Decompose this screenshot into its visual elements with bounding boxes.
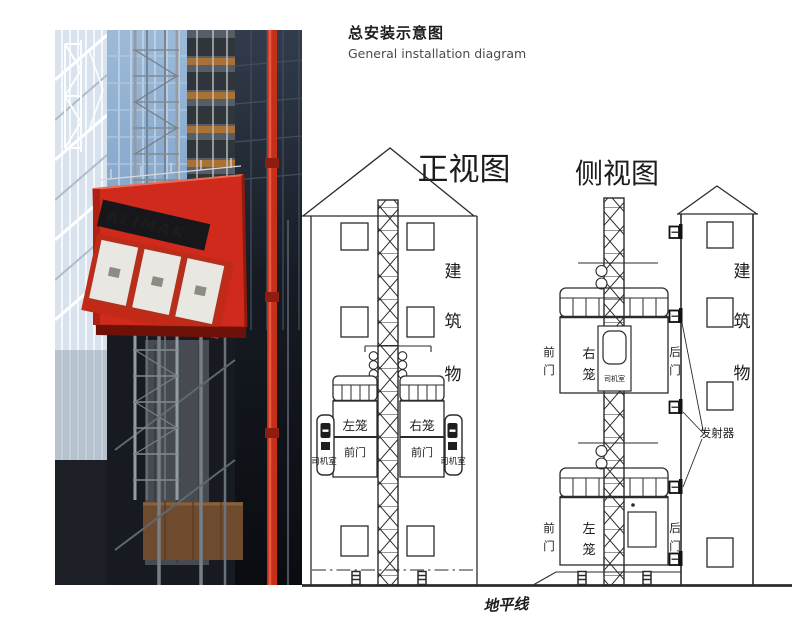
front-right-cab-label: 司机室 [440,456,466,467]
cage-window [628,512,656,547]
side-building [677,186,758,585]
front-building-label: 建 筑 物 [445,262,462,385]
svg-text:物: 物 [445,365,462,385]
front-right-door-label: 前门 [411,445,433,459]
svg-text:笼: 笼 [582,542,595,558]
side-building-label: 建 筑 物 [734,262,751,384]
transmitter-icon [670,551,683,566]
side-lower-rear-door: 后 [669,521,681,535]
front-left-cab: 司机室 [311,415,337,475]
transmitter-icon [670,479,683,494]
front-right-cage: 右笼 前门 [400,376,444,477]
side-cab-label: 司机室 [604,374,625,383]
front-mast [378,200,398,585]
side-view: 侧视图 司机室 右 笼 前 门 后 [534,157,758,585]
front-left-cab-label: 司机室 [311,456,337,467]
ground: 地平线 [302,586,792,616]
svg-text:建: 建 [445,262,462,282]
svg-text:门: 门 [669,363,681,377]
side-view-title: 侧视图 [575,157,659,190]
svg-text:门: 门 [543,539,555,553]
front-left-cage: 左笼 前门 [333,376,377,477]
svg-text:物: 物 [734,364,751,384]
front-left-door-label: 前门 [344,445,366,459]
svg-text:筑: 筑 [734,312,751,332]
side-lower-cage-label: 左 [582,522,595,537]
front-left-cage-label: 左笼 [342,418,367,433]
transmitter-label: 发射器 [700,426,735,440]
ground-label: 地平线 [483,595,531,615]
side-upper-front-door: 前 [543,345,555,359]
transmitter-icon [670,308,683,323]
side-upper-cage-label: 右 [582,347,595,362]
front-right-cage-label: 右笼 [409,418,434,433]
svg-text:建: 建 [734,262,751,282]
transmitter-leaders [682,323,703,487]
cab-window [603,331,626,364]
svg-text:笼: 笼 [582,367,595,383]
transmitter-icon [670,224,683,239]
front-view-title: 正视图 [418,152,511,188]
svg-text:门: 门 [543,363,555,377]
svg-text:筑: 筑 [445,312,462,332]
installation-diagram: 正视图 建 筑 物 [0,0,800,628]
side-upper-rear-door: 后 [669,345,681,359]
transmitter-icon [670,399,683,414]
manual-page: ALIMAK 总安装示意图 General [0,0,800,628]
side-lower-front-door: 前 [543,521,555,535]
svg-text:门: 门 [669,539,681,553]
front-view: 正视图 建 筑 物 [302,148,511,585]
